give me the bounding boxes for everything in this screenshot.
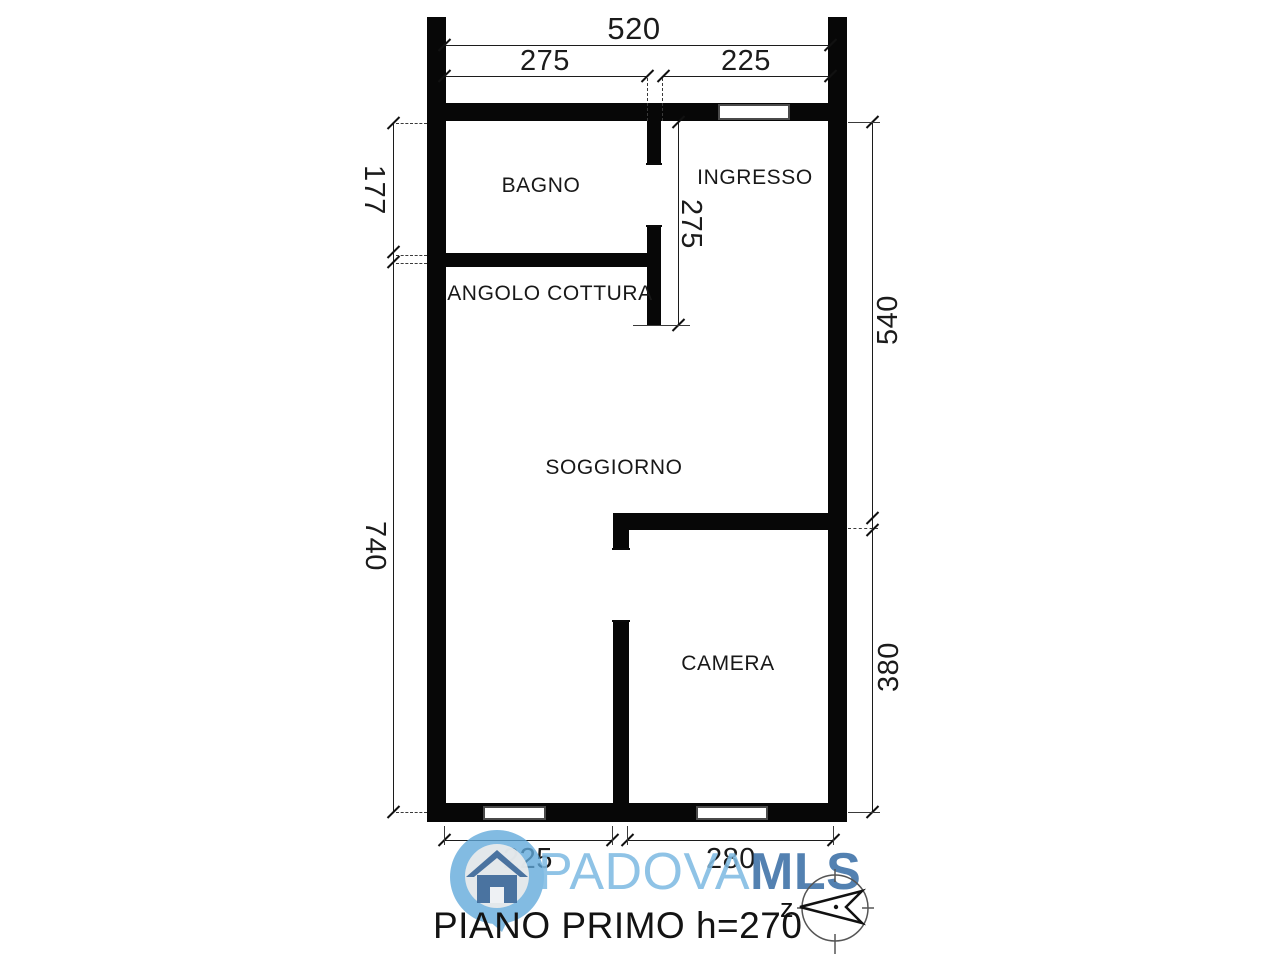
extension-line	[396, 123, 427, 124]
dim-label-520: 520	[594, 13, 674, 45]
door-bagno	[646, 163, 662, 227]
wall-camera-top	[613, 513, 829, 530]
dim-label-225-top: 225	[706, 46, 786, 76]
dim-label-275-top: 275	[505, 46, 585, 76]
wall-bagno-bottom	[446, 253, 661, 267]
extension-line	[647, 78, 648, 121]
room-label-soggiorno: SOGGIORNO	[544, 453, 684, 483]
extension-line	[848, 528, 878, 529]
room-label-bagno: BAGNO	[471, 171, 611, 201]
wall-right-outer	[828, 17, 847, 822]
plan-title: PIANO PRIMO h=270	[433, 905, 802, 947]
extension-line	[662, 78, 663, 121]
dim-label-540: 540	[873, 280, 903, 360]
dim-line-280-bottom	[627, 840, 833, 841]
window-camera	[696, 806, 768, 820]
compass-letter: z	[780, 893, 794, 924]
dim-line-177	[393, 123, 394, 256]
extension-line	[396, 255, 427, 256]
room-label-ingresso: INGRESSO	[685, 163, 825, 193]
dim-label-740: 740	[360, 506, 390, 586]
extension-line	[633, 325, 690, 326]
extension-line	[396, 812, 427, 813]
dim-label-275-inner: 275	[676, 184, 706, 264]
extension-line	[396, 263, 427, 264]
extension-line	[848, 812, 880, 813]
compass-north-arrow-icon	[795, 868, 887, 958]
room-label-angolo-cottura: ANGOLO COTTURA	[450, 279, 650, 309]
window-ingresso-top	[718, 104, 790, 120]
dim-line-740	[393, 256, 394, 812]
room-label-camera: CAMERA	[658, 649, 798, 679]
brand-padova-text: PADOVA	[538, 842, 750, 902]
extension-line	[848, 122, 880, 123]
dim-label-380: 380	[874, 627, 904, 707]
window-soggiorno	[483, 806, 546, 820]
door-camera	[612, 548, 630, 622]
floor-plan-canvas: 520 275 225 177 740 275 540 380 225 280	[0, 0, 1280, 960]
wall-left-outer	[427, 17, 446, 822]
dim-label-177: 177	[359, 150, 389, 230]
